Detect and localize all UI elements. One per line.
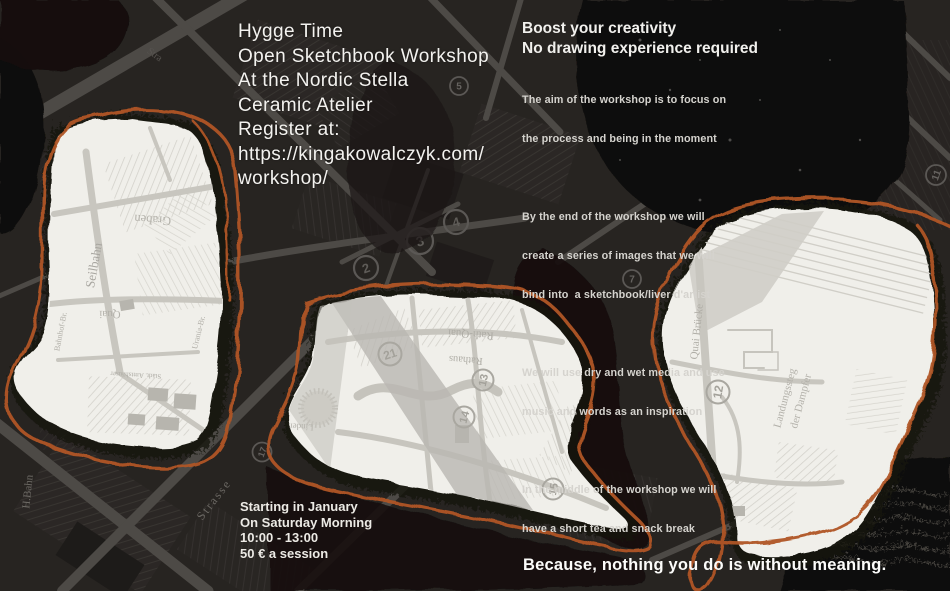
paragraph-line: the process and being in the moment [522,133,772,146]
heading-line: At the Nordic Stella [238,69,489,94]
workshop-details: Boost your creativity No drawing experie… [522,19,772,591]
details-paragraph: The aim of the workshop is to focus on t… [522,68,772,172]
paragraph-line: By the end of the workshop we will [522,211,772,224]
details-header-line: Boost your creativity [522,19,772,39]
map-badge: 13 [477,373,491,387]
paragraph-line: We will use dry and wet media and use [522,367,772,380]
details-header: Boost your creativity No drawing experie… [522,19,772,59]
heading-line: Open Sketchbook Workshop [238,45,489,70]
details-header-line: No drawing experience required [522,39,772,59]
paragraph-line: music and words as an inspiration [522,406,772,419]
street-label: Graben [133,212,171,229]
registration-url: https://kingakowalczyk.com/ [238,143,489,168]
schedule-line: On Saturday Morning [240,515,372,531]
details-paragraph: By the end of the workshop we will creat… [522,185,772,328]
paragraph-line: The aim of the workshop is to focus on [522,94,772,107]
schedule-price: 50 € a session [240,546,372,562]
registration-url-line2: workshop/ [238,167,489,192]
details-paragraph: All the materials as well as backed good… [522,575,772,591]
schedule-time: 10:00 - 13:00 [240,530,372,546]
details-paragraph: We will use dry and wet media and use mu… [522,341,772,445]
workshop-heading: Hygge Time Open Sketchbook Workshop At t… [238,20,489,192]
schedule-info: Starting in January On Saturday Morning … [240,499,372,561]
street-label: Quai [99,308,121,320]
schedule-line: Starting in January [240,499,372,515]
workshop-poster: H.Bahn Strasse Stra o/o Alp 5 2 3 4 7 17… [0,0,950,591]
heading-line: Ceramic Atelier [238,94,489,119]
paragraph-line: In the middle of the workshop we will [522,484,772,497]
paragraph-line: create a series of images that we will [522,250,772,263]
details-paragraph: In the middle of the workshop we will ha… [522,458,772,562]
street-label: Rathaus [449,353,484,366]
heading-line: Register at: [238,118,489,143]
paragraph-line: bind into a sketchbook/liver d'artist [522,289,772,302]
heading-line: Hygge Time [238,20,489,45]
paragraph-line: have a short tea and snack break [522,523,772,536]
tagline: Because, nothing you do is without meani… [523,556,886,575]
